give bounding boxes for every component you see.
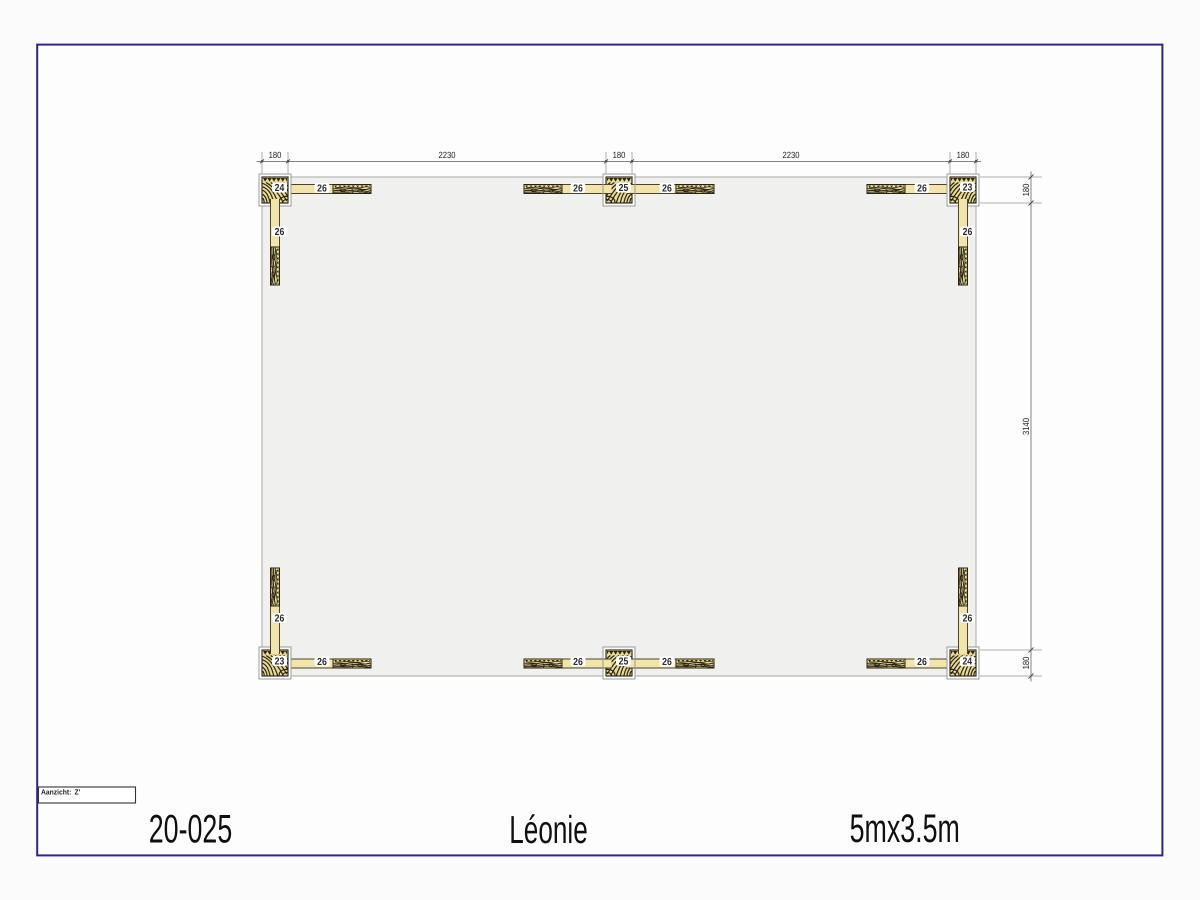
svg-text:2230: 2230 <box>782 150 799 160</box>
svg-text:26: 26 <box>917 183 927 194</box>
svg-text:180: 180 <box>1021 657 1031 670</box>
svg-text:26: 26 <box>573 657 583 668</box>
svg-text:26: 26 <box>917 657 927 668</box>
svg-text:23: 23 <box>275 656 285 667</box>
svg-text:24: 24 <box>275 183 285 194</box>
svg-text:3140: 3140 <box>1021 418 1031 435</box>
svg-text:25: 25 <box>619 183 629 194</box>
svg-text:24: 24 <box>962 657 972 668</box>
svg-text:Aanzicht:: Aanzicht: <box>41 788 71 797</box>
svg-text:25: 25 <box>619 656 629 667</box>
svg-text:26: 26 <box>275 613 285 624</box>
svg-text:20-025: 20-025 <box>149 808 232 852</box>
svg-text:26: 26 <box>275 227 285 238</box>
svg-text:26: 26 <box>317 183 327 194</box>
svg-text:180: 180 <box>269 150 282 160</box>
svg-text:26: 26 <box>662 657 672 668</box>
svg-text:Z': Z' <box>75 788 81 797</box>
svg-text:26: 26 <box>662 183 672 194</box>
svg-text:23: 23 <box>963 182 973 193</box>
svg-text:180: 180 <box>613 150 626 160</box>
svg-text:180: 180 <box>1021 184 1031 197</box>
svg-text:26: 26 <box>573 183 583 194</box>
svg-text:26: 26 <box>963 227 973 238</box>
svg-text:26: 26 <box>963 613 973 624</box>
svg-text:26: 26 <box>317 657 327 668</box>
svg-text:5mx3.5m: 5mx3.5m <box>850 807 960 851</box>
svg-text:2230: 2230 <box>438 150 455 160</box>
svg-text:180: 180 <box>957 150 970 160</box>
svg-text:Léonie: Léonie <box>509 809 587 852</box>
